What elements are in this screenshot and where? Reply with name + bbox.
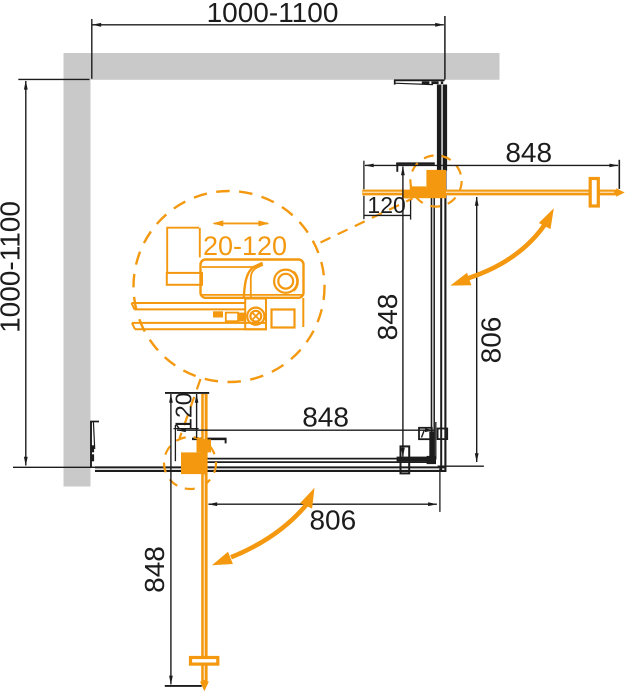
svg-text:120: 120 xyxy=(367,192,405,218)
svg-text:1000-1100: 1000-1100 xyxy=(207,0,339,28)
svg-text:806: 806 xyxy=(309,505,356,536)
svg-text:848: 848 xyxy=(302,401,349,432)
svg-text:848: 848 xyxy=(139,546,170,593)
svg-text:848: 848 xyxy=(372,294,403,341)
svg-text:806: 806 xyxy=(476,317,507,364)
svg-text:848: 848 xyxy=(505,137,552,168)
svg-text:20-120: 20-120 xyxy=(203,231,287,261)
svg-text:1000-1100: 1000-1100 xyxy=(0,201,26,333)
svg-text:120: 120 xyxy=(171,392,197,430)
